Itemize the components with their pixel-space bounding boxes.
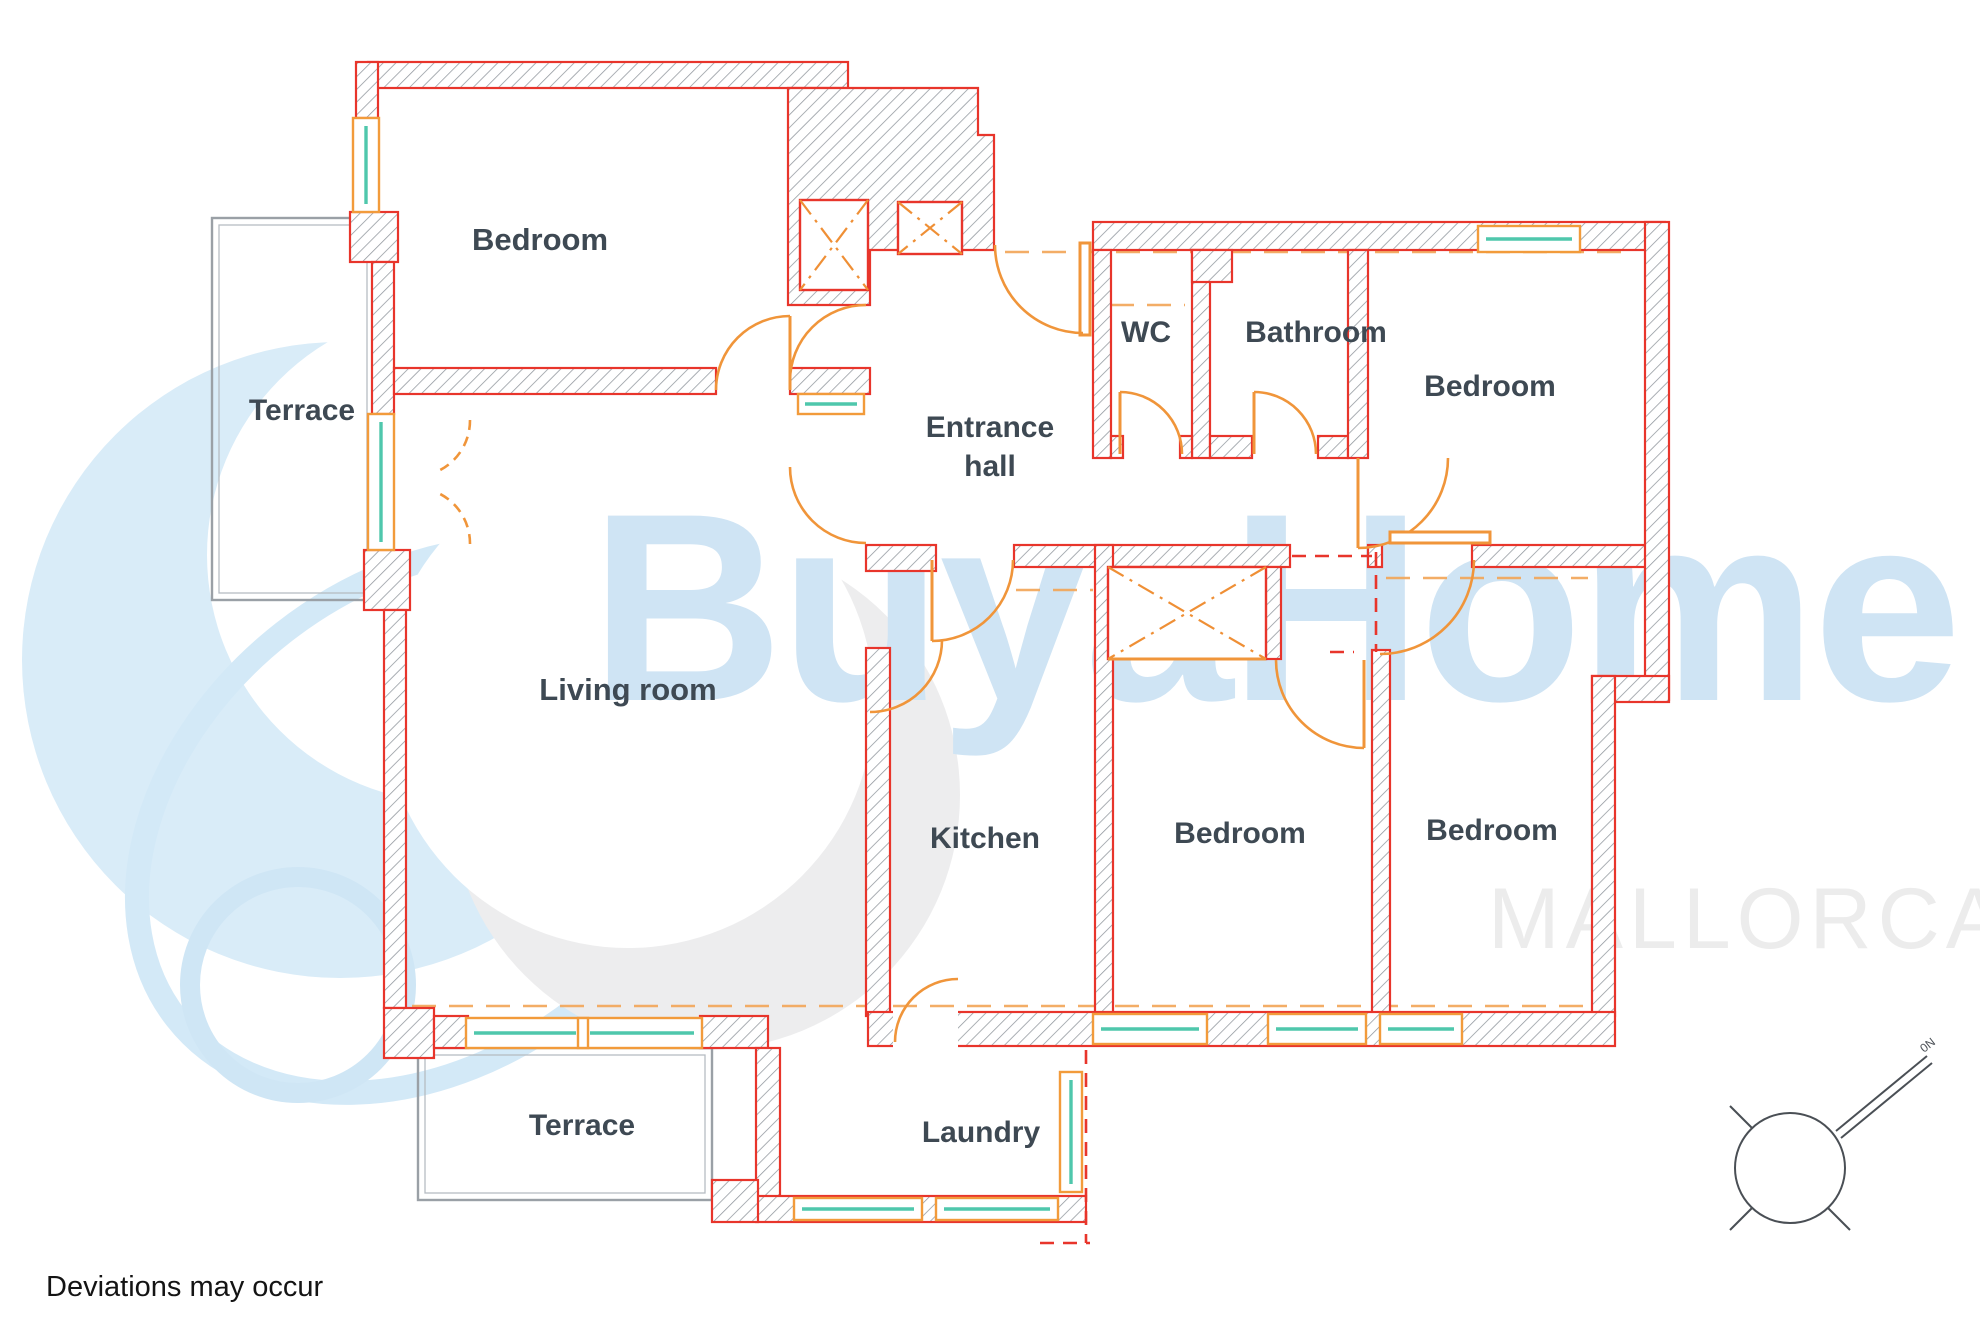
label-bedroom-bottom-right: Bedroom xyxy=(1426,814,1558,847)
watermark-region-text: MALLORCA xyxy=(1488,871,1980,967)
label-terrace-left: Terrace xyxy=(249,394,355,427)
floor-plan-canvas: BuyaHome MALLORCA xyxy=(0,0,1980,1320)
compass-north-label: 0N xyxy=(1917,1035,1938,1055)
label-entrance-hall-line2: hall xyxy=(964,450,1016,483)
label-laundry: Laundry xyxy=(922,1116,1041,1149)
compass-icon: 0N xyxy=(1730,1035,1938,1230)
label-terrace-bottom: Terrace xyxy=(529,1109,635,1142)
label-wc: WC xyxy=(1121,316,1171,349)
label-kitchen: Kitchen xyxy=(930,822,1040,855)
floor-plan-page: BuyaHome MALLORCA xyxy=(0,0,1980,1320)
label-bathroom: Bathroom xyxy=(1245,316,1387,349)
label-living-room: Living room xyxy=(539,672,716,707)
label-bedroom-top-right: Bedroom xyxy=(1424,370,1556,403)
label-bedroom-middle: Bedroom xyxy=(1174,817,1306,850)
door-gap xyxy=(893,1008,958,1050)
disclaimer-text: Deviations may occur xyxy=(46,1271,324,1303)
label-entrance-hall-line1: Entrance xyxy=(926,411,1054,444)
label-bedroom-top-left: Bedroom xyxy=(472,222,608,257)
